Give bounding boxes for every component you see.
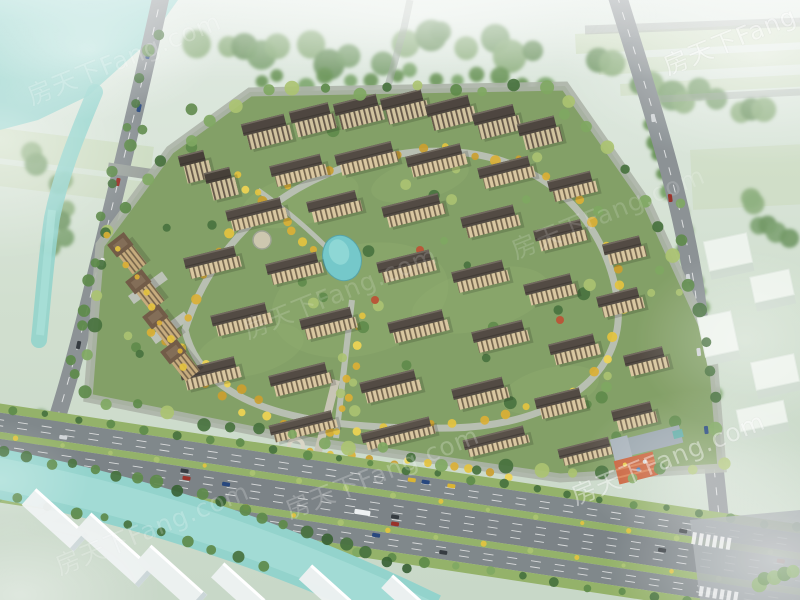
mist-overlay: [0, 0, 800, 600]
aerial-rendering: 房天下Fang.com 房天下Fang.com 房天下Fang.com 房天下F…: [0, 0, 800, 600]
scene-canvas: [0, 0, 800, 600]
